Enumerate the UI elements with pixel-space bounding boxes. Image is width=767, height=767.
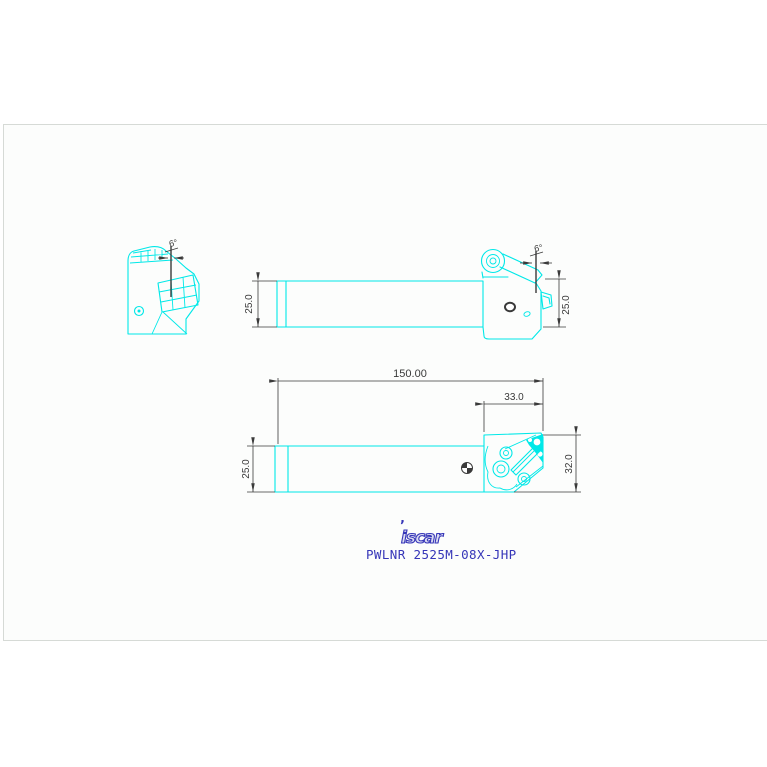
front-view-screw-upper-inner (504, 451, 509, 456)
top-view: 25.0 25.0 6° (244, 242, 572, 339)
front-view-dim-length: 150.00 (278, 368, 543, 444)
front-dim-head-length-label: 33.0 (504, 392, 524, 403)
brand-logo-text: iscar (401, 528, 442, 548)
brand-logo: ’ iscar (401, 528, 481, 548)
center-of-gravity-symbol (462, 463, 473, 474)
top-view-dim-left: 25.0 (244, 281, 277, 327)
top-view-angle-dimension: 6° (520, 242, 552, 293)
side-view-body-outline (128, 247, 199, 334)
side-view-insert-outline (158, 275, 198, 312)
technical-drawing: 6° 25.0 25.0 6° (0, 0, 767, 767)
cad-viewer-page: { "drawing": { "side_view": { "angle": "… (0, 0, 767, 767)
front-view-clamp-screw (493, 461, 509, 477)
side-view-screw-hole-center (138, 310, 141, 313)
top-view-clamp-screw-mid (487, 255, 500, 268)
side-view-diagonals (152, 312, 187, 334)
iscar-leaf-icon: ’ (400, 519, 404, 534)
front-dim-shank-height-label: 25.0 (241, 459, 252, 479)
front-dim-head-height-label: 32.0 (564, 454, 575, 474)
front-view-shank (275, 446, 514, 492)
top-view-clamp-screw-inner (490, 258, 496, 264)
front-dim-length-label: 150.00 (393, 368, 427, 380)
top-dim-left-label: 25.0 (244, 294, 255, 314)
top-view-dim-right: 25.0 (543, 279, 572, 327)
front-view: 150.00 33.0 25.0 32.0 (241, 368, 581, 492)
front-view-corner-dot-1 (534, 439, 541, 446)
top-view-insert (541, 292, 552, 309)
top-dim-right-label: 25.0 (561, 295, 572, 315)
side-angle-label: 6° (168, 237, 179, 249)
front-view-clamp-screw-inner (497, 465, 505, 473)
top-view-clamp-screw-outer (482, 250, 505, 273)
top-view-pin-hole (505, 303, 515, 311)
top-view-small-hole (523, 311, 531, 317)
top-angle-label: 6° (533, 242, 544, 253)
side-view: 6° (128, 237, 199, 334)
part-number: PWLNR 2525M-08X-JHP (366, 547, 517, 562)
top-view-shank (277, 281, 483, 327)
front-view-dim-shank-height: 25.0 (241, 446, 275, 492)
front-view-clamp-pin-inner (513, 448, 537, 472)
front-view-dim-head-length: 33.0 (484, 392, 543, 432)
